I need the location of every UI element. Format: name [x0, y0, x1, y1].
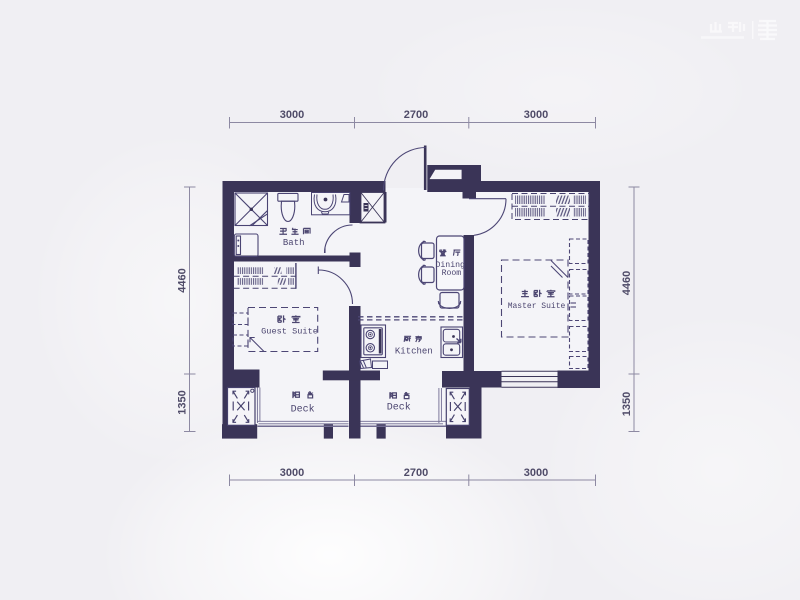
svg-text:3000: 3000	[280, 109, 304, 121]
svg-text:Guest Suite: Guest Suite	[261, 327, 318, 337]
svg-text:2700: 2700	[404, 467, 428, 479]
svg-text:3000: 3000	[524, 109, 548, 121]
svg-text:Room: Room	[442, 269, 462, 278]
svg-text:Bath: Bath	[283, 238, 305, 248]
svg-text:Deck: Deck	[387, 402, 411, 414]
svg-text:Master Suite: Master Suite	[508, 302, 566, 311]
svg-text:3000: 3000	[280, 467, 304, 479]
svg-text:Deck: Deck	[291, 404, 315, 416]
svg-text:Kitchen: Kitchen	[395, 347, 433, 357]
svg-text:1350: 1350	[621, 392, 633, 416]
svg-text:4460: 4460	[177, 268, 189, 292]
svg-text:4460: 4460	[621, 271, 633, 295]
svg-text:2700: 2700	[404, 109, 428, 121]
svg-text:3000: 3000	[524, 467, 548, 479]
svg-text:1350: 1350	[177, 390, 189, 414]
